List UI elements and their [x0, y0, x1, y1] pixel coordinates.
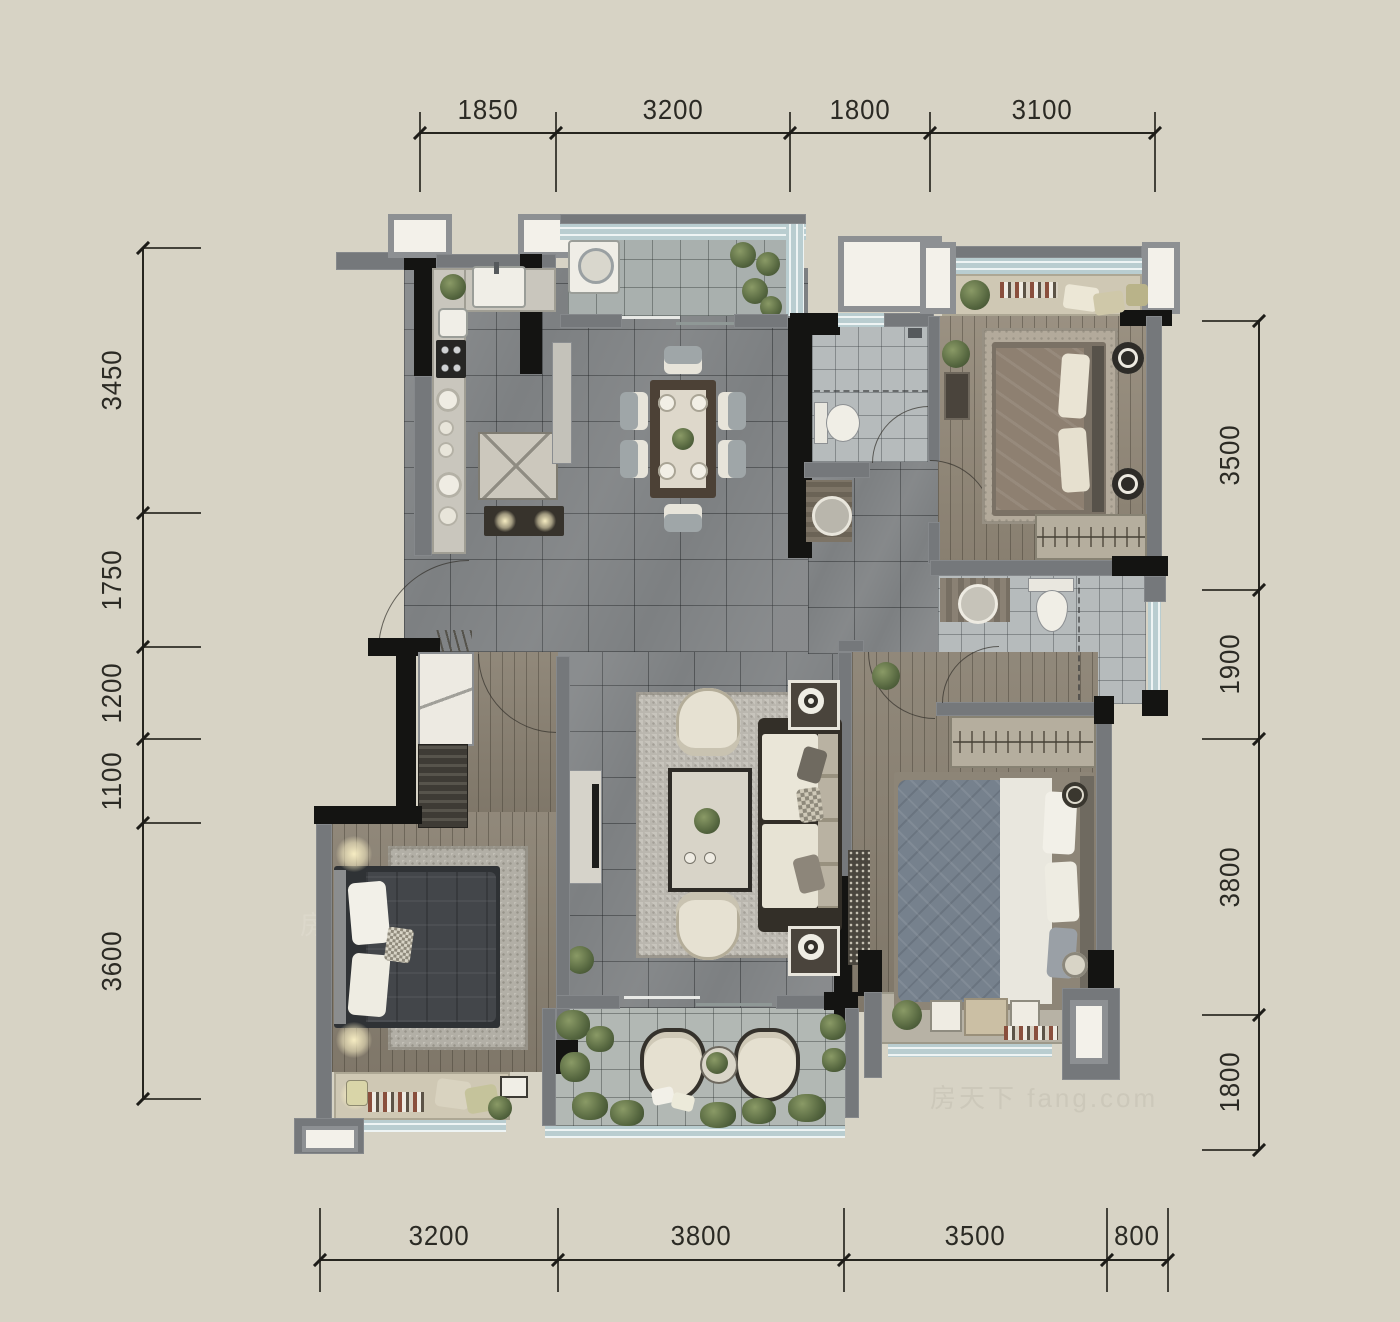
kettle — [438, 308, 468, 338]
lamp-glow — [494, 510, 516, 532]
shrub-icon — [556, 1010, 590, 1040]
extension-line — [789, 112, 791, 192]
bath-transom-window — [838, 313, 884, 327]
hall-wardrobe — [418, 744, 468, 828]
wall — [1144, 576, 1166, 602]
dimension-label: 1750 — [96, 534, 128, 626]
extension-line — [143, 1098, 201, 1100]
ensuite-window — [1148, 600, 1161, 690]
extension-line — [557, 1208, 559, 1292]
kitchen-cart — [478, 432, 558, 500]
headboard — [334, 870, 346, 1024]
extension-line — [929, 112, 931, 192]
dimension-label: 1800 — [830, 94, 891, 126]
glass-partition — [814, 390, 928, 392]
plant-icon — [694, 808, 720, 834]
dimension-label: 3800 — [671, 1220, 732, 1252]
dresser — [848, 850, 870, 965]
seat-cushion — [964, 998, 1008, 1036]
master-bay-window — [888, 1044, 1052, 1057]
toilet-bowl — [826, 404, 860, 442]
tall-cabinet — [552, 342, 572, 464]
plate — [438, 442, 454, 458]
wash-basin-icon — [958, 584, 998, 624]
wall — [928, 522, 940, 564]
window-column — [920, 242, 956, 314]
books-row — [1000, 282, 1058, 298]
plate — [658, 394, 676, 412]
plant-icon — [488, 1096, 512, 1120]
dimension-label: 3500 — [945, 1220, 1006, 1252]
lamp-glow — [336, 836, 372, 872]
headboard — [1092, 346, 1104, 512]
extension-line — [1202, 1014, 1260, 1016]
dining-chair — [620, 440, 648, 478]
wall — [884, 313, 934, 327]
wall — [560, 314, 622, 328]
sliding-door — [622, 316, 680, 319]
shrub-icon — [822, 1048, 846, 1072]
extension-line — [1202, 320, 1260, 322]
armchair — [676, 688, 740, 756]
bedroom3-bay-window — [342, 1120, 506, 1132]
round-tray — [1062, 952, 1088, 978]
wardrobe — [1035, 514, 1147, 560]
dimension-label: 1850 — [458, 94, 519, 126]
shrub-icon — [820, 1014, 846, 1040]
bed-pillow — [1058, 427, 1090, 493]
shrub-icon — [788, 1094, 826, 1122]
extension-line — [143, 738, 201, 740]
shrub-icon — [610, 1100, 644, 1126]
wall — [560, 214, 806, 224]
extension-line — [1202, 589, 1260, 591]
plate — [690, 394, 708, 412]
washing-machine-drum — [578, 248, 614, 284]
table-decor — [684, 852, 696, 864]
dresser — [944, 372, 970, 420]
balcony-window-side — [786, 224, 804, 316]
wall — [804, 462, 870, 478]
wall-column — [1142, 690, 1168, 716]
wall — [776, 995, 828, 1009]
basket — [1126, 284, 1148, 306]
wall-column — [1112, 556, 1168, 576]
seat-cushion — [930, 1000, 962, 1032]
dimension-label: 3450 — [96, 334, 128, 426]
shower-glass — [1078, 578, 1080, 700]
wall — [414, 376, 432, 556]
books-row — [1004, 1026, 1058, 1040]
lamp-glow — [336, 1022, 372, 1058]
wall-column — [414, 268, 432, 376]
nightstand-round — [1062, 782, 1088, 808]
plant-icon — [566, 946, 594, 974]
seat-pillow — [1093, 290, 1126, 316]
dining-chair — [620, 392, 648, 430]
dimension-label: 3500 — [1214, 409, 1246, 501]
dimension-label: 3200 — [409, 1220, 470, 1252]
extension-line — [319, 1208, 321, 1292]
shrub-icon — [586, 1026, 614, 1052]
dimension-label: 3800 — [1214, 831, 1246, 923]
plant-icon — [942, 340, 970, 368]
cooktop-icon — [436, 340, 466, 378]
wash-basin-icon — [812, 496, 852, 536]
tv-icon — [592, 784, 599, 868]
bed-pillow — [384, 926, 414, 963]
extension-line — [143, 247, 201, 249]
dimension-label: 1800 — [1214, 1036, 1246, 1128]
entry-closet — [418, 652, 474, 746]
balcony-window — [560, 224, 806, 240]
dining-chair — [718, 440, 746, 478]
dimension-line-left — [142, 248, 144, 1099]
centerpiece-plant-icon — [672, 428, 694, 450]
sofa-pillow — [796, 786, 824, 823]
sliding-door — [696, 1003, 772, 1006]
dimension-label: 3100 — [1012, 94, 1073, 126]
wall — [556, 656, 570, 1040]
side-table-lamp-icon — [798, 688, 824, 714]
kitchen-sink-icon — [472, 266, 526, 308]
wall — [845, 1008, 859, 1118]
sliding-door — [624, 996, 700, 999]
dining-chair — [718, 392, 746, 430]
wall — [928, 316, 940, 462]
wall — [734, 314, 788, 328]
window-column — [1070, 1000, 1108, 1064]
extension-line — [555, 112, 557, 192]
plate — [436, 472, 462, 498]
wall — [542, 1008, 556, 1126]
vase — [346, 1080, 368, 1106]
lounge-chair — [734, 1028, 800, 1102]
shrub-icon — [560, 1052, 590, 1082]
dimension-label: 1900 — [1214, 618, 1246, 710]
wall-column — [396, 656, 416, 808]
side-stool — [1112, 342, 1144, 374]
dimension-label: 1100 — [96, 735, 128, 827]
plate — [438, 506, 458, 526]
plate — [436, 388, 460, 412]
plate — [690, 462, 708, 480]
extension-line — [843, 1208, 845, 1292]
plate — [438, 420, 454, 436]
lamp-glow — [534, 510, 556, 532]
extension-line — [143, 822, 201, 824]
plate — [658, 462, 676, 480]
corner-window — [302, 1126, 358, 1152]
dimension-label: 800 — [1107, 1220, 1168, 1252]
dining-chair — [664, 504, 702, 532]
shrub-icon — [742, 1098, 776, 1124]
watermark: 房天下 fang.com — [930, 1078, 1158, 1115]
books-row — [368, 1092, 424, 1112]
dimension-label: 3600 — [96, 915, 128, 1007]
extension-line — [419, 112, 421, 192]
plant-icon — [440, 274, 466, 300]
plant-icon — [730, 242, 756, 268]
extension-line — [143, 646, 201, 648]
wall-column — [1094, 696, 1114, 724]
entry-threshold — [436, 630, 472, 652]
bedroom2-bay-rail — [946, 246, 1142, 258]
wall — [556, 995, 620, 1009]
bed-pillow — [1044, 861, 1079, 923]
shrub-icon — [700, 1102, 736, 1128]
extension-line — [143, 512, 201, 514]
dimension-label: 1200 — [96, 647, 128, 739]
plant-icon — [706, 1052, 728, 1074]
sliding-door — [676, 322, 734, 325]
wall-column — [858, 950, 882, 996]
extension-line — [1202, 738, 1260, 740]
wardrobe — [950, 716, 1096, 768]
plant-icon — [892, 1000, 922, 1030]
bed-pillow — [347, 952, 390, 1017]
wall — [1146, 316, 1162, 562]
faucet — [494, 262, 499, 274]
bedroom2-bay-window — [946, 258, 1142, 274]
wall-column — [314, 806, 422, 824]
wall — [864, 992, 882, 1078]
magazine — [500, 1076, 528, 1098]
shrub-icon — [572, 1092, 608, 1120]
wall — [936, 702, 1098, 716]
shower-head-icon — [908, 328, 922, 338]
floor-plan-canvas: 房天下 fang.com 房天下 fang.com 房天下 fang.com 房… — [0, 0, 1400, 1322]
dining-chair — [664, 346, 702, 374]
armchair — [676, 892, 740, 960]
side-stool — [1112, 468, 1144, 500]
side-table-lamp-icon — [798, 934, 824, 960]
wall — [316, 824, 332, 1120]
wall — [838, 640, 864, 652]
extension-line — [1154, 112, 1156, 192]
terrace-railing — [545, 1126, 845, 1138]
kitchen-window — [388, 214, 452, 258]
plant-icon — [756, 252, 780, 276]
bed-duvet — [898, 780, 1002, 1002]
extension-line — [1202, 1149, 1260, 1151]
dimension-label: 3200 — [643, 94, 704, 126]
bed-pillow — [1058, 353, 1090, 419]
bed-pillow — [347, 880, 390, 945]
plant-icon — [960, 280, 990, 310]
table-decor — [704, 852, 716, 864]
dimension-line-bottom — [320, 1259, 1168, 1261]
plant-icon — [872, 662, 900, 690]
